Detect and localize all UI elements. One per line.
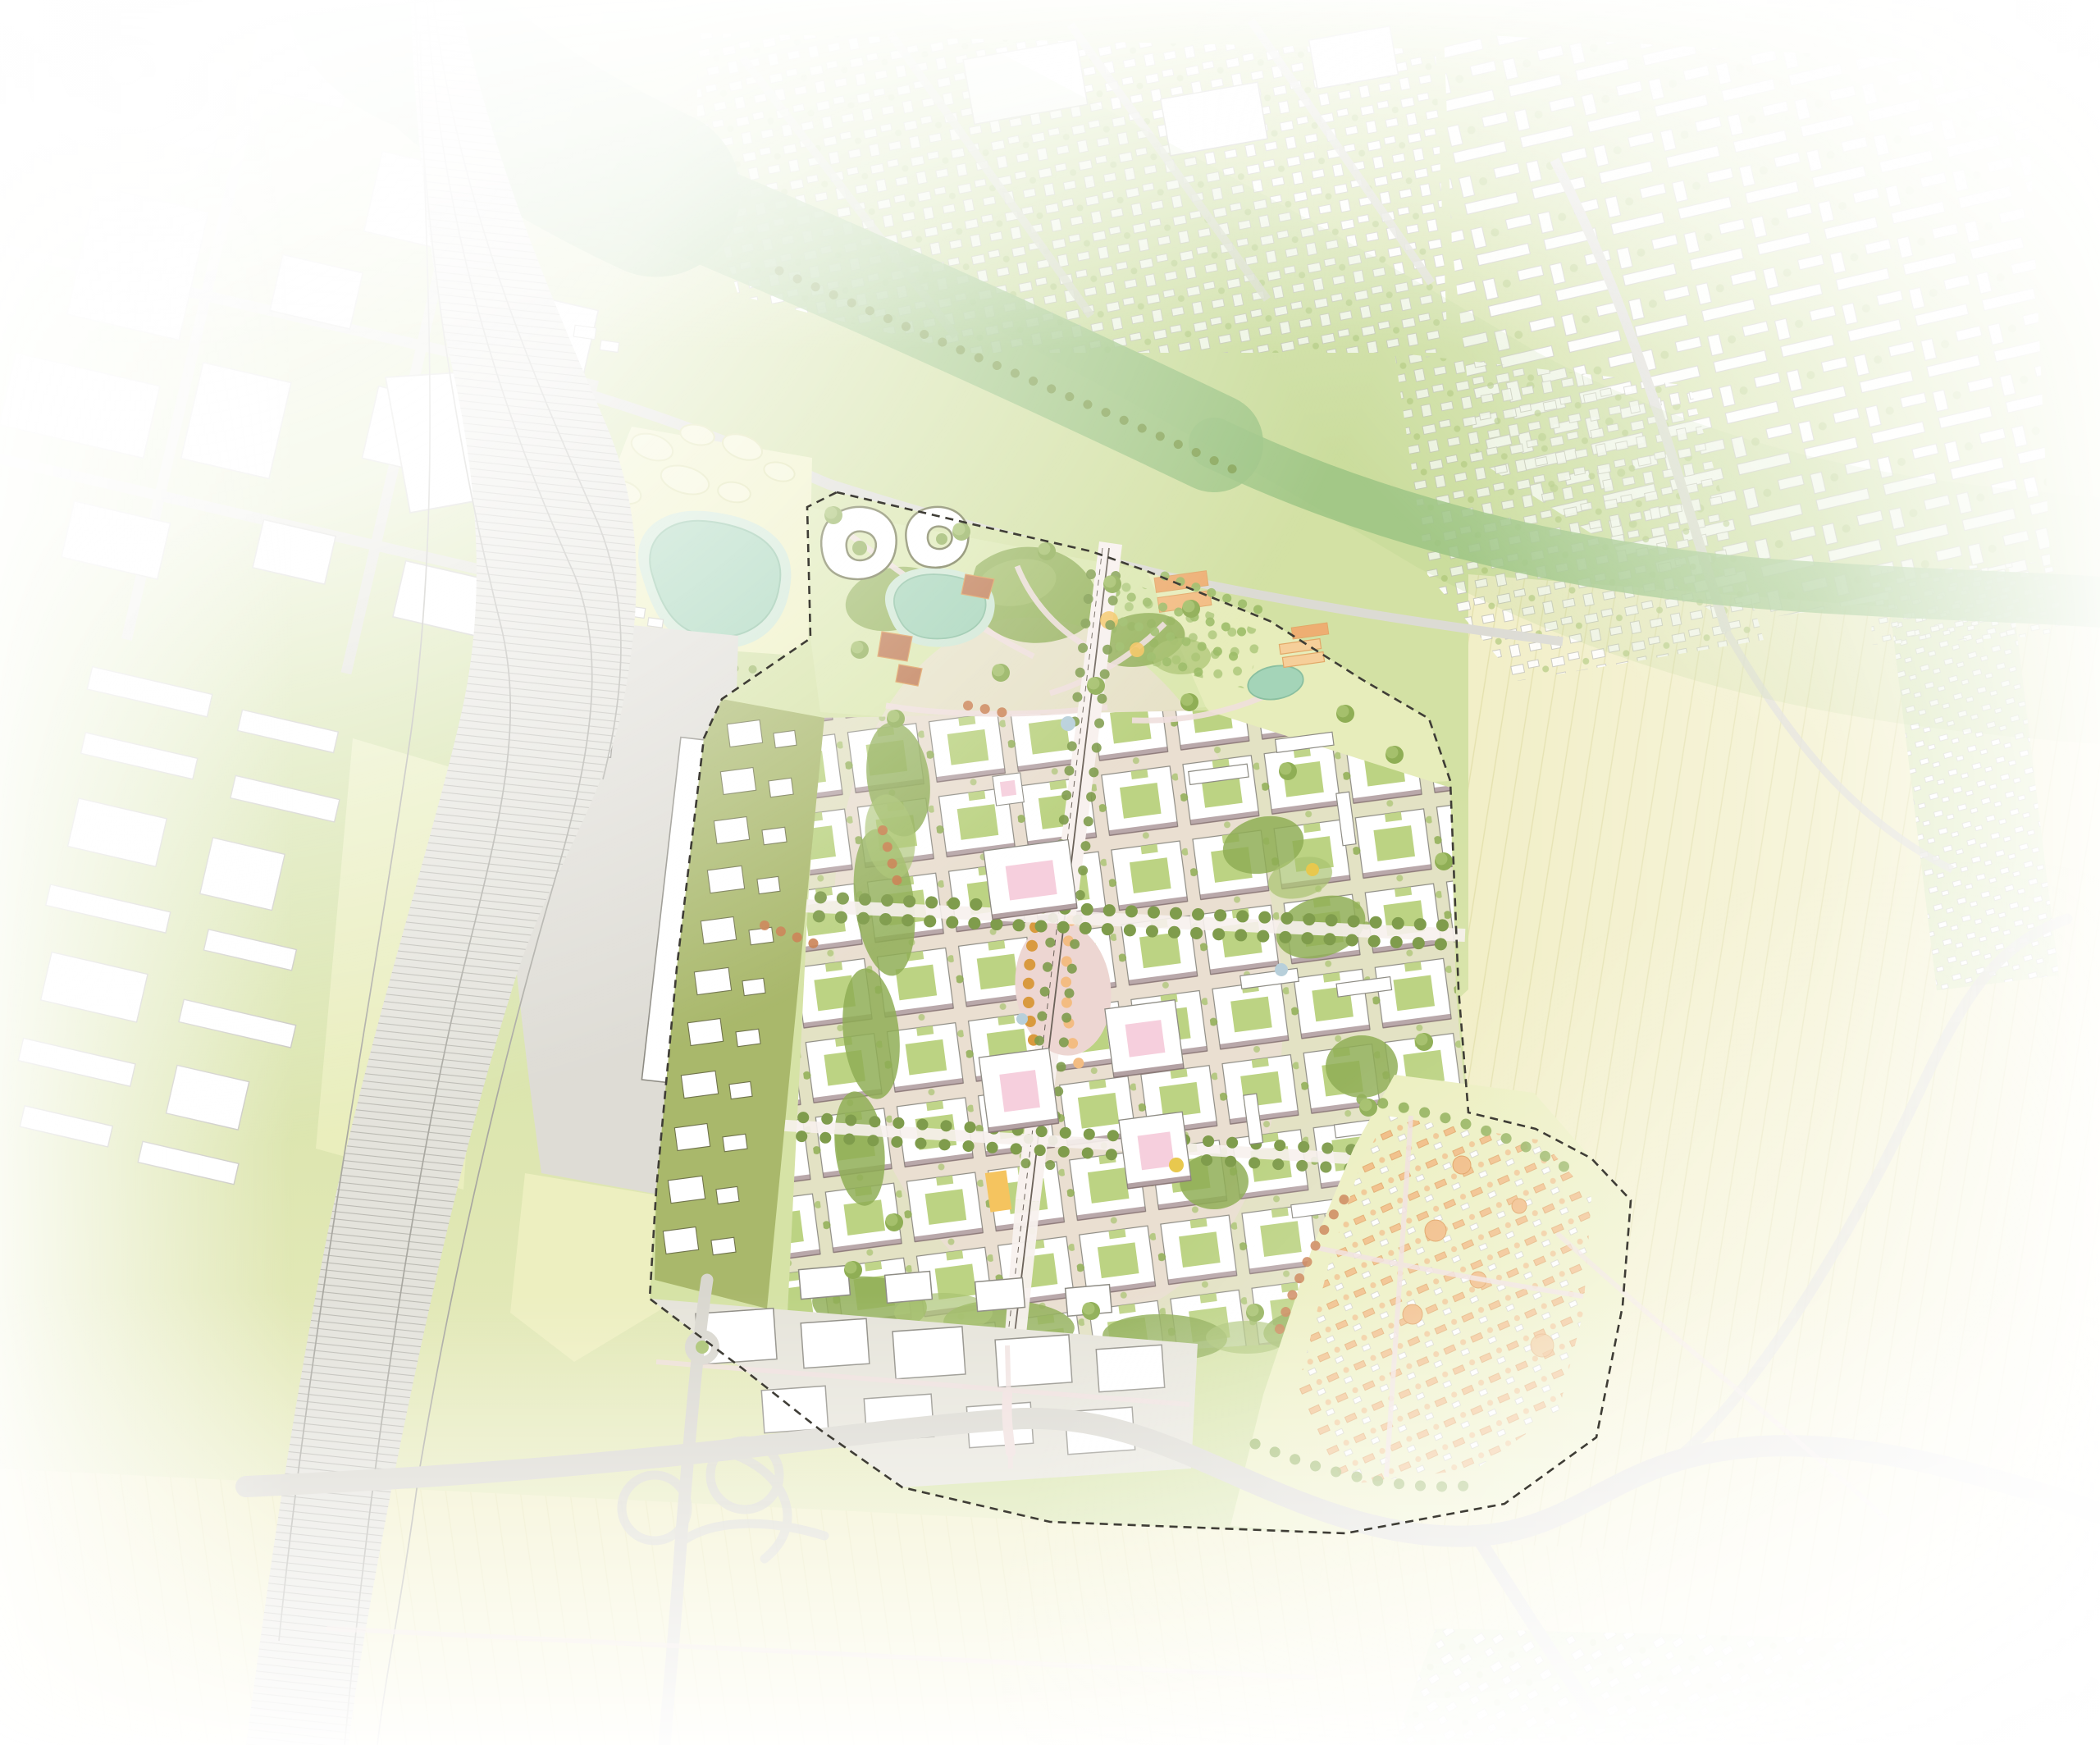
masterplan-map [0,0,2100,1745]
veil-bottom-right [0,0,2100,1745]
edge-veils [0,0,2100,1745]
masterplan-svg [0,0,2100,1745]
